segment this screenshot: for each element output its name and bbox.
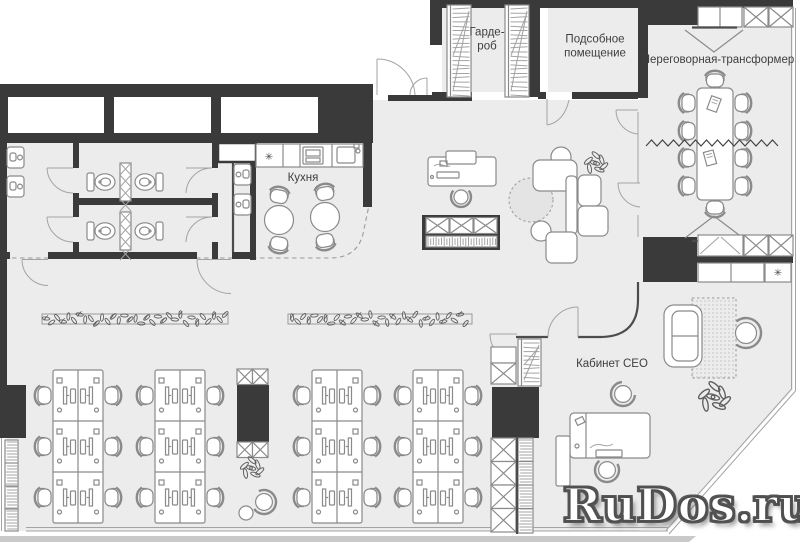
room-label-ceo: Кабинет CEO <box>576 358 648 372</box>
entrance-doors <box>377 59 427 95</box>
room-label-wardrobe-line2: роб <box>469 40 504 54</box>
room-label-wardrobe-line1: Гарде- <box>469 26 504 40</box>
kitchen-outlet-symbol: ✳ <box>265 152 273 163</box>
room-label-utility-line1: Подсобное <box>564 33 626 47</box>
room-label-kitchen: Кухня <box>288 172 319 186</box>
room-label-meeting: Переговорная-трансформер <box>642 54 794 68</box>
room-label-utility: Подсобное помещение <box>564 33 626 60</box>
watermark: RuDos.ru <box>563 478 800 532</box>
room-label-utility-line2: помещение <box>564 47 626 61</box>
ceo-outlet-symbol: ✳ <box>774 268 782 279</box>
room-label-wardrobe: Гарде- роб <box>469 26 504 53</box>
floor-plan: ✳ ✳ <box>0 0 800 542</box>
floor-plan-page: ✳ ✳ Гарде- роб Подсобное помещение Перег… <box>0 0 800 542</box>
